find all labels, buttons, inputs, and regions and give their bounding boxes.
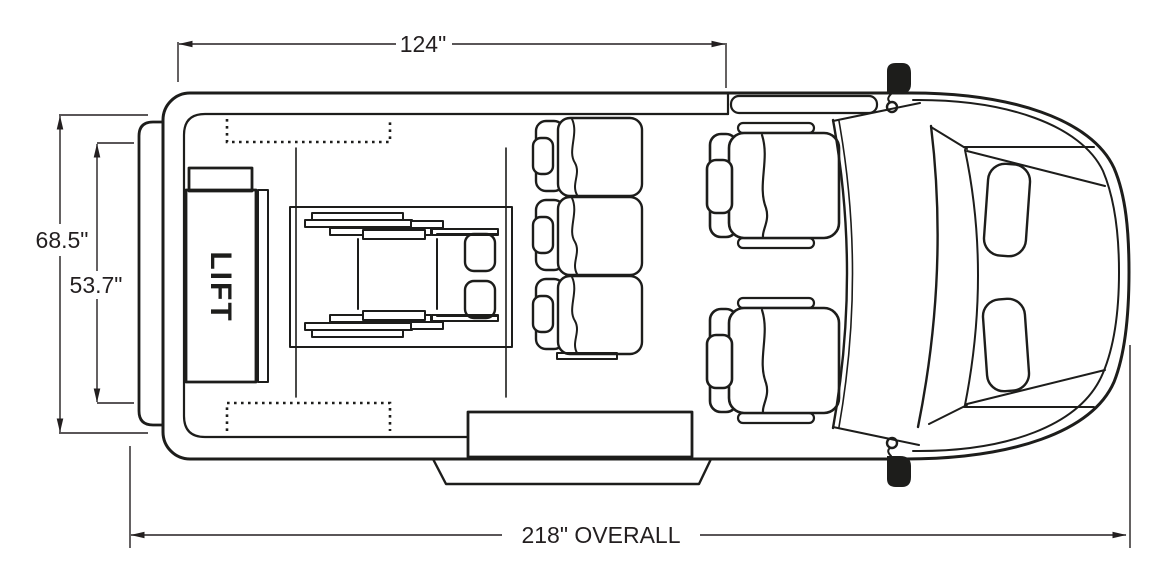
dimension-interior-width: 53.7" (70, 143, 134, 403)
lift-label: LIFT (204, 251, 237, 322)
wheel-bar (411, 322, 443, 329)
seat-cushion (558, 197, 642, 275)
wheel-bar (411, 221, 443, 228)
seat-headrest (533, 138, 553, 174)
diagram-canvas: LIFT (0, 0, 1170, 582)
side-mirror-bottom-icon (887, 456, 911, 487)
push-handle-bar (363, 311, 425, 320)
bench-seat-row (533, 118, 642, 359)
chair-headrest (707, 335, 732, 388)
chair-cushion (729, 308, 839, 413)
seat-cushion (558, 118, 642, 196)
dimension-label-124: 124" (400, 31, 447, 57)
dimension-upper-length: 124" (178, 31, 726, 88)
chair-headrest (707, 160, 732, 213)
chair-cushion (729, 133, 839, 238)
wheel-bar (312, 330, 403, 337)
wheel-bar (312, 213, 403, 220)
wheel-bar (305, 220, 412, 227)
dimension-label-218-overall: 218" OVERALL (521, 522, 680, 548)
push-handle-bar (363, 230, 425, 239)
seat-headrest (533, 296, 553, 332)
van-floor-plan-diagram: LIFT (0, 0, 1170, 582)
wheel-bar (305, 323, 412, 330)
seat-cushion (558, 276, 642, 354)
running-board (433, 459, 711, 484)
side-mirror-top-icon (887, 63, 911, 94)
dimension-label-68-5: 68.5" (36, 227, 89, 253)
dimension-label-53-7: 53.7" (70, 272, 123, 298)
seat-headrest (533, 217, 553, 253)
entry-step (468, 412, 692, 457)
